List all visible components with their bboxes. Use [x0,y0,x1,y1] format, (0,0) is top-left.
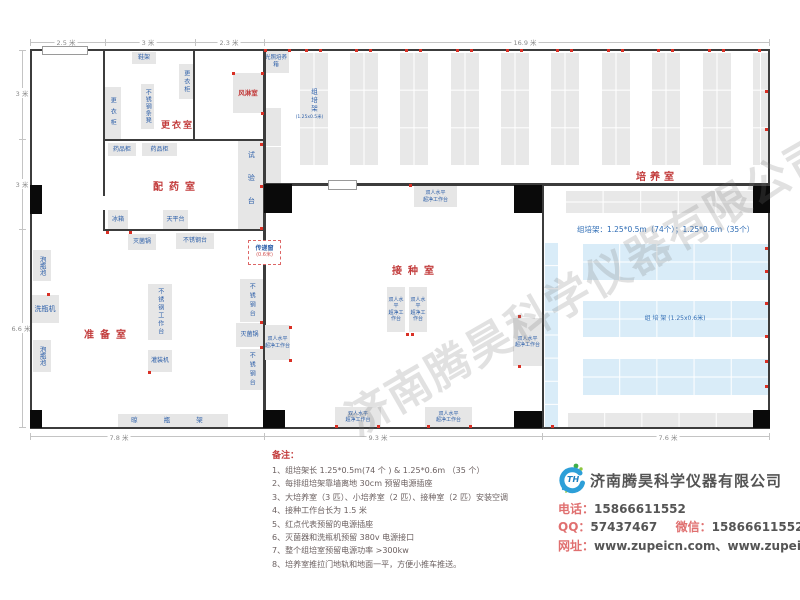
power-outlet-dot [406,333,409,336]
dim-top-2: 3 米 [140,37,157,47]
note-item: 4、接种工作台长为 1.5 米 [272,504,508,517]
note-item: 7、整个组培室预留电源功率 >300kw [272,544,508,557]
clean-bench-center-right: 双人水平超净工作台 [409,287,427,332]
clean-bench-east: 双人水平超净工作台 [513,318,542,366]
power-outlet-dot [765,270,768,273]
room-label-inoculation: 接种室 [392,262,440,277]
dim-tick [30,39,31,46]
power-outlet-dot [260,227,263,230]
note-item: 3、大培养室（3 匹）、小培养室（2 匹）、接种室（2 匹）安装空调 [272,491,508,504]
note-item: 1、组培架长 1.25*0.5m(74 个 ) & 1.25*0.6m （35 … [272,464,508,477]
power-outlet-dot [260,143,263,146]
dim-bottom-1: 7.8 米 [108,432,131,442]
company-logo: TH [556,462,586,500]
pass-through-window: 传递窗 (0.6米) [248,240,281,265]
power-outlet-dot [419,49,422,52]
note-item: 6、灭菌器和洗瓶机预留 380v 电源接口 [272,531,508,544]
wall-inoculation-east [542,183,544,428]
wall-dressing-bottom [103,139,265,141]
dim-tick [195,39,196,46]
dim-tick [19,229,26,230]
outer-wall [30,49,770,429]
clean-bench-west: 双人水平超净工作台 [265,325,290,360]
pillar [264,184,292,213]
dim-tick [19,50,26,51]
note-item: 2、每排组培架靠墙离地 30cm 预留电源插座 [272,477,508,490]
power-outlet-dot [148,371,151,374]
power-outlet-dot [289,326,292,329]
power-outlet-dot [409,184,412,187]
power-outlet-dot [261,72,264,75]
notes-block: 备注： 1、组培架长 1.25*0.5m(74 个 ) & 1.25*0.6m … [272,448,508,571]
power-outlet-dot [405,49,408,52]
power-outlet-dot [335,425,338,428]
door-gap-pharmacy [102,196,107,210]
clean-bench-bottom-1: 双人水平超净工作台 [335,407,381,427]
svg-text:TH: TH [567,475,579,484]
power-outlet-dot [607,49,610,52]
power-outlet-dot [470,49,473,52]
power-outlet-dot [765,90,768,93]
dim-left-1: 3 米 [14,88,31,98]
power-outlet-dot [556,49,559,52]
pillar [30,185,42,214]
power-outlet-dot [708,49,711,52]
note-item: 5、红点代表预留的电源插座 [272,518,508,531]
dim-line-left [22,50,23,428]
power-outlet-dot [765,335,768,338]
power-outlet-dot [261,112,264,115]
dim-top-4: 16.9 米 [511,37,538,47]
wall-pharmacy-bottom [103,229,265,231]
pillar [514,411,542,428]
power-outlet-dot [369,49,372,52]
power-outlet-dot [657,49,660,52]
power-outlet-dot [47,293,50,296]
dim-tick [769,433,770,440]
power-outlet-dot [758,49,761,52]
contact-qq-wechat: QQ：57437467 微信：15866611552 [558,518,800,535]
power-outlet-dot [355,49,358,52]
power-outlet-dot [570,49,573,52]
power-outlet-dot [469,425,472,428]
dim-tick [19,139,26,140]
room-label-dressing: 更衣室 [161,118,194,131]
power-outlet-dot [289,359,292,362]
contact-website: 网址：www.zupeicn.com、www.zupei17.com [558,537,800,554]
dim-left-2: 3 米 [14,179,31,189]
power-outlet-dot [319,49,322,52]
power-outlet-dot [671,49,674,52]
power-outlet-dot [621,49,624,52]
entrance-door [42,46,88,55]
power-outlet-dot [232,72,235,75]
dim-tick [105,39,106,46]
power-outlet-dot [427,425,430,428]
rack-label-horizontal: 组 培 架 (1.25x0.6米) [582,313,768,322]
room-label-pharmacy: 配药室 [153,178,201,193]
clean-bench-bottom-2: 双人水平超净工作台 [425,407,472,427]
power-outlet-dot [106,231,109,234]
pillar [30,410,42,428]
dim-tick [264,433,265,440]
power-outlet-dot [765,302,768,305]
dim-top-3: 2.3 米 [218,37,241,47]
clean-bench-center-left: 双人水平超净工作台 [387,287,405,332]
dim-bottom-2: 9.3 米 [367,432,390,442]
power-outlet-dot [260,346,263,349]
pillar [514,185,542,213]
pillar [753,186,770,213]
sliding-door-culture [328,180,357,190]
dim-bottom-3: 7.6 米 [657,432,680,442]
dim-tick [769,39,770,46]
pillar [263,410,285,428]
power-outlet-dot [260,185,263,188]
rack-annotation: 组培架：1.25*0.5m（74个）；1.25*0.6m（35个） [577,224,754,235]
power-outlet-dot [129,231,132,234]
power-outlet-dot [264,49,267,52]
power-outlet-dot [456,49,459,52]
rack-label-vertical: 组培架 (1.25x0.5米) [299,88,328,120]
power-outlet-dot [506,49,509,52]
wall-prep-east [263,50,266,428]
power-outlet-dot [551,425,554,428]
power-outlet-dot [765,385,768,388]
power-outlet-dot [305,49,308,52]
dim-tick [19,427,26,428]
dim-tick [264,39,265,46]
power-outlet-dot [518,365,521,368]
note-item: 8、培养室推拉门地轨和地面一平，方便小推车推送。 [272,558,508,571]
power-outlet-dot [722,49,725,52]
room-label-prep: 准备室 [84,326,132,341]
notes-title: 备注： [272,448,508,461]
power-outlet-dot [377,425,380,428]
clean-bench-top: 双人水平超净工作台 [414,186,457,207]
power-outlet-dot [518,315,521,318]
dim-tick [30,433,31,440]
dim-tick [542,433,543,440]
power-outlet-dot [411,333,414,336]
room-label-culture: 培养室 [636,168,678,183]
power-outlet-dot [765,360,768,363]
power-outlet-dot [765,247,768,250]
power-outlet-dot [520,49,523,52]
pillar [753,410,770,428]
floorplan-page: { "plan": { "rooms": { "dressing": "更衣室"… [0,0,800,600]
power-outlet-dot [288,49,291,52]
power-outlet-dot [260,321,263,324]
company-name: 济南腾昊科学仪器有限公司 [590,470,782,491]
contact-phone: 电话：15866611552 [558,500,686,517]
power-outlet-dot [765,128,768,131]
